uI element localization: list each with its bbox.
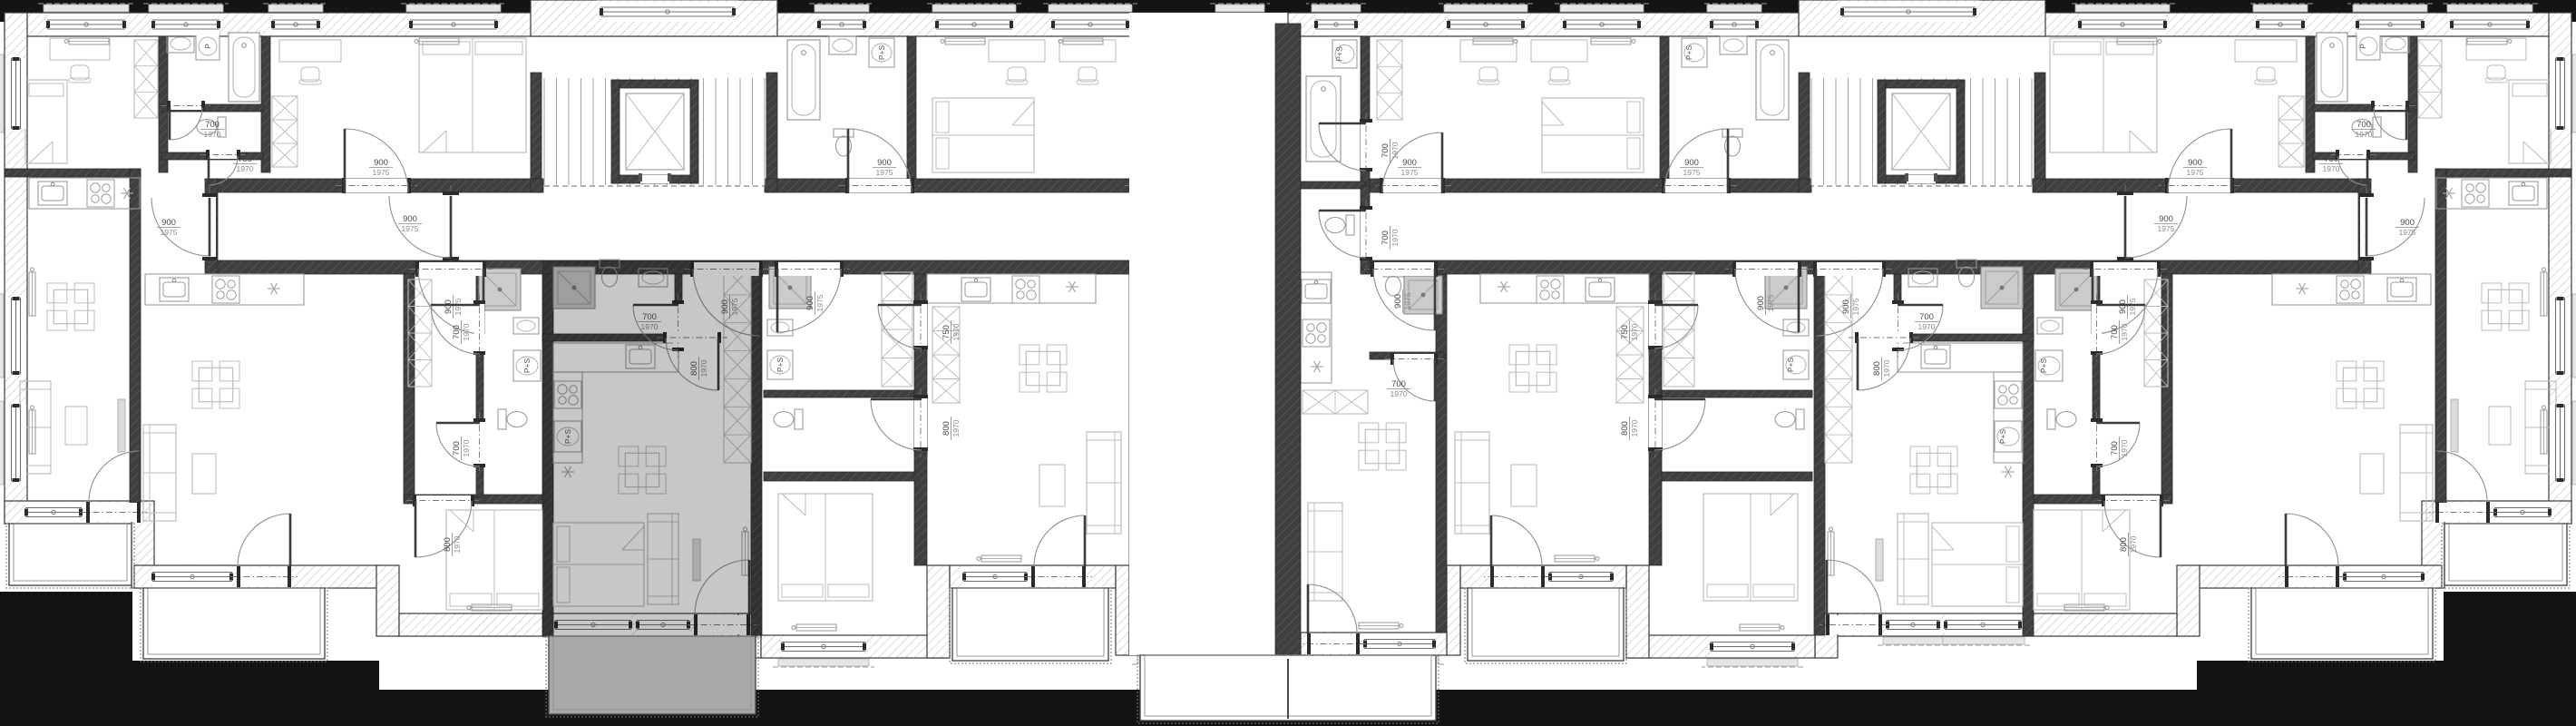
svg-text:1975: 1975 xyxy=(2399,228,2416,237)
svg-text:700: 700 xyxy=(1381,143,1390,158)
svg-text:1975: 1975 xyxy=(1401,168,1419,177)
wall xyxy=(1956,80,1965,183)
window xyxy=(263,4,328,35)
washer-icon: P+S xyxy=(513,350,541,381)
svg-text:1975: 1975 xyxy=(815,294,825,311)
wall xyxy=(764,390,916,397)
wall xyxy=(1660,390,1812,397)
svg-text:P+S: P+S xyxy=(2039,358,2048,374)
svg-text:1975: 1975 xyxy=(1851,298,1860,315)
wall xyxy=(2034,73,2045,192)
svg-text:700: 700 xyxy=(1919,312,1934,322)
wall xyxy=(765,179,777,192)
elevator xyxy=(1878,80,1965,183)
svg-text:P: P xyxy=(2358,44,2367,49)
washer-icon: P xyxy=(196,33,220,60)
svg-text:1970: 1970 xyxy=(2323,164,2340,173)
svg-text:900: 900 xyxy=(1756,296,1766,310)
svg-text:800: 800 xyxy=(1872,361,1882,376)
svg-text:1970: 1970 xyxy=(951,323,961,340)
svg-text:1975: 1975 xyxy=(2158,224,2175,233)
floor-plan-stage: PP+SP+SP+SP+SP+S900197590019759001975900… xyxy=(0,0,2576,726)
svg-text:P+S: P+S xyxy=(1786,358,1795,373)
window xyxy=(2070,4,2175,35)
wall xyxy=(2435,169,2571,177)
svg-text:1975: 1975 xyxy=(1766,294,1775,311)
svg-text:1970: 1970 xyxy=(2356,130,2373,139)
svg-text:900: 900 xyxy=(1402,158,1417,168)
svg-text:1970: 1970 xyxy=(1390,142,1400,159)
wall xyxy=(2023,274,2034,636)
svg-text:700: 700 xyxy=(2356,120,2371,130)
svg-text:1970: 1970 xyxy=(1630,419,1639,437)
svg-text:1970: 1970 xyxy=(1918,322,1936,331)
window xyxy=(2550,294,2576,378)
svg-text:900: 900 xyxy=(2118,299,2128,314)
svg-text:1975: 1975 xyxy=(876,168,893,177)
window xyxy=(1878,614,1948,645)
washer-icon: P+S xyxy=(1995,421,2022,452)
svg-text:1975: 1975 xyxy=(2128,298,2137,315)
svg-text:P+S: P+S xyxy=(1998,429,2007,445)
svg-text:800: 800 xyxy=(1620,421,1630,436)
svg-text:700: 700 xyxy=(238,154,252,164)
svg-text:900: 900 xyxy=(403,214,417,224)
washer-icon: P+S xyxy=(869,38,894,67)
wall xyxy=(1436,274,1447,633)
svg-text:P+S: P+S xyxy=(776,358,785,373)
svg-text:1970: 1970 xyxy=(2120,439,2129,456)
window xyxy=(2248,4,2313,35)
svg-text:900: 900 xyxy=(444,299,454,314)
wall xyxy=(690,80,698,183)
window xyxy=(773,636,874,667)
wall xyxy=(2161,274,2172,501)
exterior-wall xyxy=(1447,565,1460,655)
elevator xyxy=(611,80,698,183)
balcony xyxy=(6,524,134,588)
svg-text:P: P xyxy=(203,44,212,49)
balcony xyxy=(1465,588,1626,663)
building-half: PP+SP+SP+SP+SP+S900197590019759001975900… xyxy=(1129,0,2576,667)
washer-icon: P+S xyxy=(1783,350,1809,379)
svg-text:700: 700 xyxy=(1391,379,1406,389)
balcony xyxy=(2249,588,2435,662)
svg-text:700: 700 xyxy=(452,441,462,456)
wall xyxy=(1660,472,1812,481)
wall xyxy=(2033,179,2045,192)
wall xyxy=(1799,179,1811,192)
window xyxy=(0,401,26,485)
tv-board-icon xyxy=(1876,539,1883,581)
svg-text:1970: 1970 xyxy=(462,439,471,456)
svg-text:1970: 1970 xyxy=(237,164,254,173)
wall xyxy=(404,274,415,501)
svg-text:800: 800 xyxy=(443,537,453,552)
svg-text:900: 900 xyxy=(805,296,815,310)
svg-text:1975: 1975 xyxy=(402,224,419,233)
washer-icon: P+S xyxy=(2035,350,2063,381)
washer-icon: P xyxy=(2356,33,2380,60)
svg-text:1970: 1970 xyxy=(2129,535,2138,553)
window xyxy=(1043,4,1137,35)
svg-text:1975: 1975 xyxy=(161,228,178,237)
svg-text:800: 800 xyxy=(2119,537,2129,552)
wall xyxy=(907,36,916,179)
washer-icon: P+S xyxy=(1332,40,1357,68)
wall xyxy=(611,80,698,88)
svg-text:700: 700 xyxy=(2110,441,2120,456)
window xyxy=(1936,614,2030,645)
window xyxy=(1832,0,1985,22)
window xyxy=(0,294,26,378)
exterior-wall xyxy=(1626,565,1649,658)
tv-board-icon xyxy=(118,399,125,452)
wall xyxy=(1878,80,1965,88)
svg-text:1970: 1970 xyxy=(1390,229,1400,246)
svg-text:700: 700 xyxy=(2110,325,2120,339)
exterior-wall xyxy=(2177,565,2200,636)
exterior-wall xyxy=(376,565,399,636)
wall xyxy=(611,80,620,183)
svg-text:P+S: P+S xyxy=(522,358,532,374)
svg-text:1970: 1970 xyxy=(453,535,462,553)
svg-text:1975: 1975 xyxy=(373,168,390,177)
party-wall xyxy=(1275,24,1301,655)
window xyxy=(2550,401,2576,485)
svg-text:1975: 1975 xyxy=(1683,168,1701,177)
wall xyxy=(766,73,777,192)
svg-text:900: 900 xyxy=(374,158,388,168)
window xyxy=(591,0,744,22)
wall xyxy=(1660,36,1669,179)
exterior-wall xyxy=(927,565,950,658)
bathtub-icon xyxy=(229,33,259,102)
wall xyxy=(1301,181,1365,189)
window xyxy=(809,4,874,35)
highlighted-balcony[interactable] xyxy=(546,636,758,717)
wall xyxy=(5,169,141,177)
balcony xyxy=(2442,524,2570,588)
svg-text:900: 900 xyxy=(1393,294,1403,309)
svg-text:900: 900 xyxy=(161,218,176,228)
window xyxy=(143,4,229,35)
window xyxy=(1555,4,1649,35)
floor-plan-drawing: PP+SP+SP+SP+SP+S900197590019759001975900… xyxy=(0,0,2576,726)
svg-text:1975: 1975 xyxy=(2187,168,2204,177)
tv-board-icon xyxy=(2451,399,2458,452)
svg-text:1970: 1970 xyxy=(1630,323,1639,340)
window xyxy=(2347,4,2433,35)
svg-text:700: 700 xyxy=(1381,231,1390,245)
wall xyxy=(1878,80,1886,183)
svg-text:900: 900 xyxy=(1841,299,1851,314)
bathtub-icon xyxy=(787,40,820,120)
exterior-wall xyxy=(1116,565,1129,655)
wall xyxy=(764,472,916,481)
svg-text:P+S: P+S xyxy=(1335,46,1344,62)
selected-unit-balcony[interactable] xyxy=(546,636,758,717)
balcony xyxy=(141,588,327,662)
window xyxy=(2550,54,2576,132)
svg-text:700: 700 xyxy=(452,325,462,339)
svg-text:750: 750 xyxy=(942,325,951,339)
svg-text:900: 900 xyxy=(877,158,892,168)
bathtub-icon xyxy=(2317,33,2347,102)
svg-text:1975: 1975 xyxy=(1403,292,1412,309)
svg-text:800: 800 xyxy=(942,421,951,436)
selected-unit-highlight[interactable] xyxy=(542,260,762,638)
svg-text:1970: 1970 xyxy=(204,130,221,139)
window xyxy=(401,4,506,35)
svg-text:700: 700 xyxy=(205,120,220,130)
shared-center-balcony xyxy=(1137,655,1439,723)
balcony xyxy=(950,588,1111,663)
window xyxy=(927,4,1021,35)
svg-text:1970: 1970 xyxy=(1390,389,1408,398)
svg-text:900: 900 xyxy=(2188,158,2202,168)
svg-text:P+S: P+S xyxy=(1684,45,1693,61)
wall xyxy=(1799,73,1810,192)
washer-icon: P+S xyxy=(1682,38,1707,67)
bathtub-icon xyxy=(1306,76,1341,162)
svg-text:1970: 1970 xyxy=(462,323,471,340)
svg-text:700: 700 xyxy=(2324,154,2338,164)
svg-text:750: 750 xyxy=(1620,325,1630,339)
svg-text:1970: 1970 xyxy=(951,419,961,437)
svg-text:1975: 1975 xyxy=(454,298,463,315)
svg-text:900: 900 xyxy=(2159,214,2173,224)
washer-icon: P+S xyxy=(767,350,793,379)
wall xyxy=(1275,24,1301,655)
window xyxy=(1702,636,1803,667)
wall xyxy=(531,179,543,192)
svg-text:1970: 1970 xyxy=(2120,323,2129,340)
window xyxy=(1439,4,1533,35)
svg-text:P+S: P+S xyxy=(877,45,886,61)
window xyxy=(2442,4,2538,35)
svg-text:1970: 1970 xyxy=(1882,359,1891,377)
bathtub-icon xyxy=(1756,40,1789,120)
shower-icon xyxy=(1981,267,2023,309)
wall xyxy=(531,73,542,192)
window xyxy=(38,4,134,35)
window xyxy=(1702,4,1767,35)
svg-text:900: 900 xyxy=(1684,158,1699,168)
svg-text:900: 900 xyxy=(2400,218,2415,228)
window xyxy=(0,54,26,132)
